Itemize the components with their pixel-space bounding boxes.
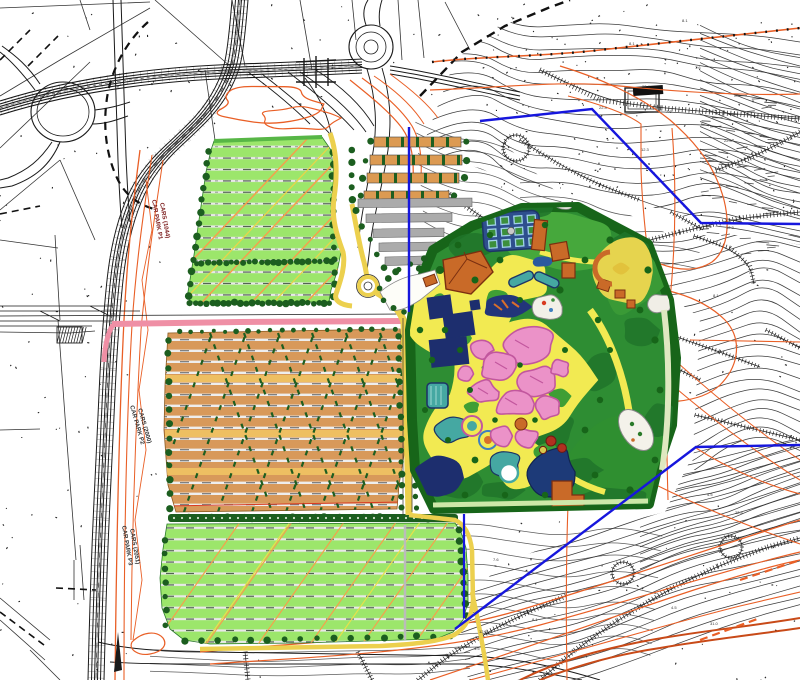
svg-text:22.4: 22.4 xyxy=(642,84,651,89)
svg-text:8.1: 8.1 xyxy=(713,293,719,298)
svg-text:7.6: 7.6 xyxy=(666,109,672,114)
svg-text:31.0: 31.0 xyxy=(710,621,719,626)
svg-text:4.5: 4.5 xyxy=(671,605,677,610)
svg-text:22.4: 22.4 xyxy=(735,510,744,515)
svg-text:4.5: 4.5 xyxy=(707,492,713,497)
svg-text:22.4: 22.4 xyxy=(724,138,733,143)
svg-text:12.3: 12.3 xyxy=(726,225,735,230)
svg-text:8.1: 8.1 xyxy=(682,18,688,23)
svg-text:8.1: 8.1 xyxy=(629,41,635,46)
svg-text:22.4: 22.4 xyxy=(599,105,608,110)
svg-text:12.3: 12.3 xyxy=(479,629,488,634)
svg-text:7.6: 7.6 xyxy=(493,557,499,562)
svg-text:4.5: 4.5 xyxy=(474,646,480,651)
svg-text:7.6: 7.6 xyxy=(695,65,701,70)
svg-text:8.1: 8.1 xyxy=(532,617,538,622)
svg-text:12.3: 12.3 xyxy=(641,147,650,152)
